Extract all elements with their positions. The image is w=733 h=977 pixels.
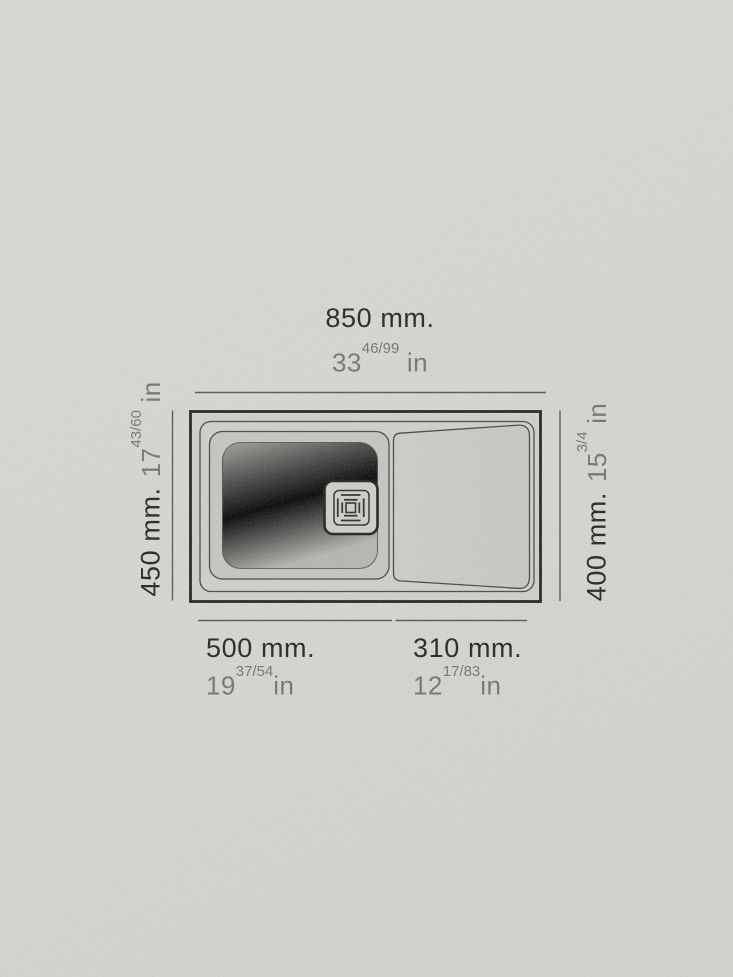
inches-whole: 17	[136, 448, 166, 478]
inches-unit: in	[399, 348, 428, 378]
dim-inner-depth-inches: 153/4 in	[582, 403, 612, 482]
dim-label-overall-depth: 450 mm.1743/60 in	[132, 374, 166, 604]
inches-whole: 33	[332, 348, 362, 378]
dim-inner-depth-mm: 400 mm.	[582, 492, 612, 601]
inches-unit: in	[582, 403, 612, 432]
drain-icon	[325, 481, 378, 534]
dim-bowl-width-mm: 500 mm.	[206, 633, 315, 663]
inches-whole: 12	[413, 671, 443, 701]
inches-fraction: 46/99	[362, 340, 400, 357]
dim-bowl-width-inches: 1937/54in	[206, 667, 315, 700]
dim-label-bowl-width: 500 mm. 1937/54in	[206, 633, 315, 700]
inches-fraction: 37/54	[236, 663, 274, 680]
inches-unit: in	[273, 671, 294, 701]
drainboard	[394, 425, 530, 588]
dim-overall-width-mm: 850 mm.	[270, 303, 490, 333]
dim-overall-depth-mm: 450 mm.	[136, 487, 166, 596]
paper-sheet: 850 mm. 3346/99 in 450 mm.1743/60 in 400…	[0, 0, 733, 977]
inches-whole: 19	[206, 671, 236, 701]
dim-overall-depth-inches: 1743/60 in	[136, 381, 166, 477]
sink-body	[191, 412, 541, 602]
dim-label-drainboard-width: 310 mm. 1217/83in	[413, 633, 522, 700]
inches-whole: 15	[582, 452, 612, 482]
sink-dimension-drawing	[0, 0, 733, 977]
inches-fraction: 43/60	[128, 410, 145, 448]
dim-label-overall-width: 850 mm. 3346/99 in	[270, 303, 490, 377]
dim-drainboard-width-mm: 310 mm.	[413, 633, 522, 663]
inches-fraction: 3/4	[574, 431, 591, 452]
inches-unit: in	[480, 671, 501, 701]
inches-unit: in	[136, 381, 166, 410]
dim-drainboard-width-inches: 1217/83in	[413, 667, 522, 700]
inches-fraction: 17/83	[443, 663, 481, 680]
dim-overall-width-inches: 3346/99 in	[270, 344, 490, 377]
dim-label-inner-depth: 400 mm.153/4 in	[578, 387, 612, 617]
